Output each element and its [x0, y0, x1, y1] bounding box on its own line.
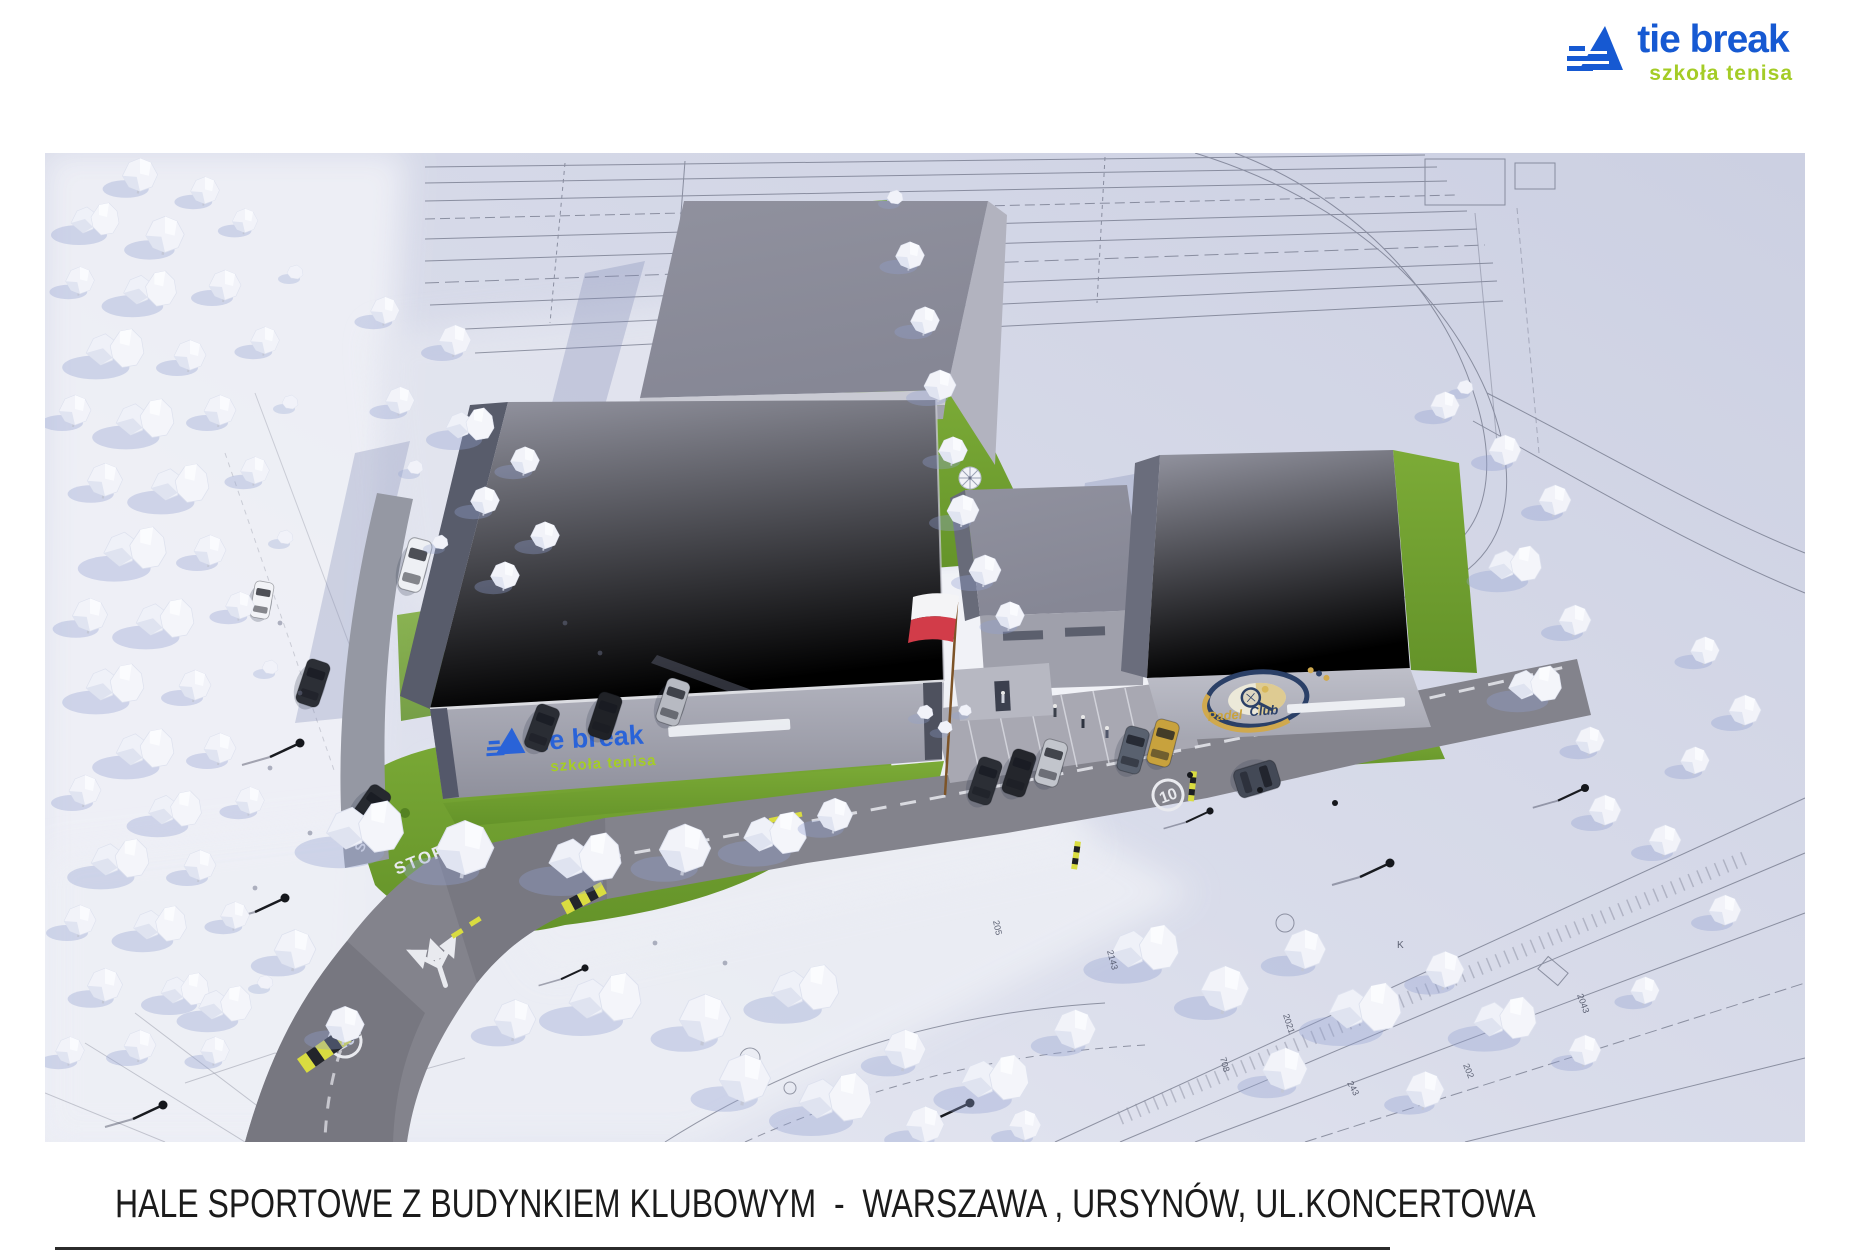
presentation-page: tie break szkoła tenisa: [0, 0, 1851, 1259]
tiebreak-triangle-icon: [1567, 26, 1627, 78]
svg-text:K: K: [1397, 940, 1404, 951]
brand-name: tie break: [1637, 20, 1788, 59]
architectural-render: STOP STOP 10 10: [45, 153, 1805, 1142]
padel-logo-word2: Club: [1249, 702, 1279, 719]
club-building: [950, 485, 1145, 721]
render-scene: STOP STOP 10 10: [45, 153, 1805, 1142]
brand-logo: tie break szkoła tenisa: [1567, 20, 1793, 84]
sports-hall-main: tie break szkoła tenisa: [400, 400, 944, 799]
padel-logo-word1: Padel: [1207, 707, 1243, 724]
page-title: HALE SPORTOWE Z BUDYNKIEM KLUBOWYM - WAR…: [115, 1182, 1536, 1227]
umbrella: [959, 467, 981, 489]
caption-divider: [55, 1247, 1390, 1250]
padel-hall: Padel Club: [1121, 450, 1431, 741]
brand-tagline: szkoła tenisa: [1649, 63, 1793, 84]
